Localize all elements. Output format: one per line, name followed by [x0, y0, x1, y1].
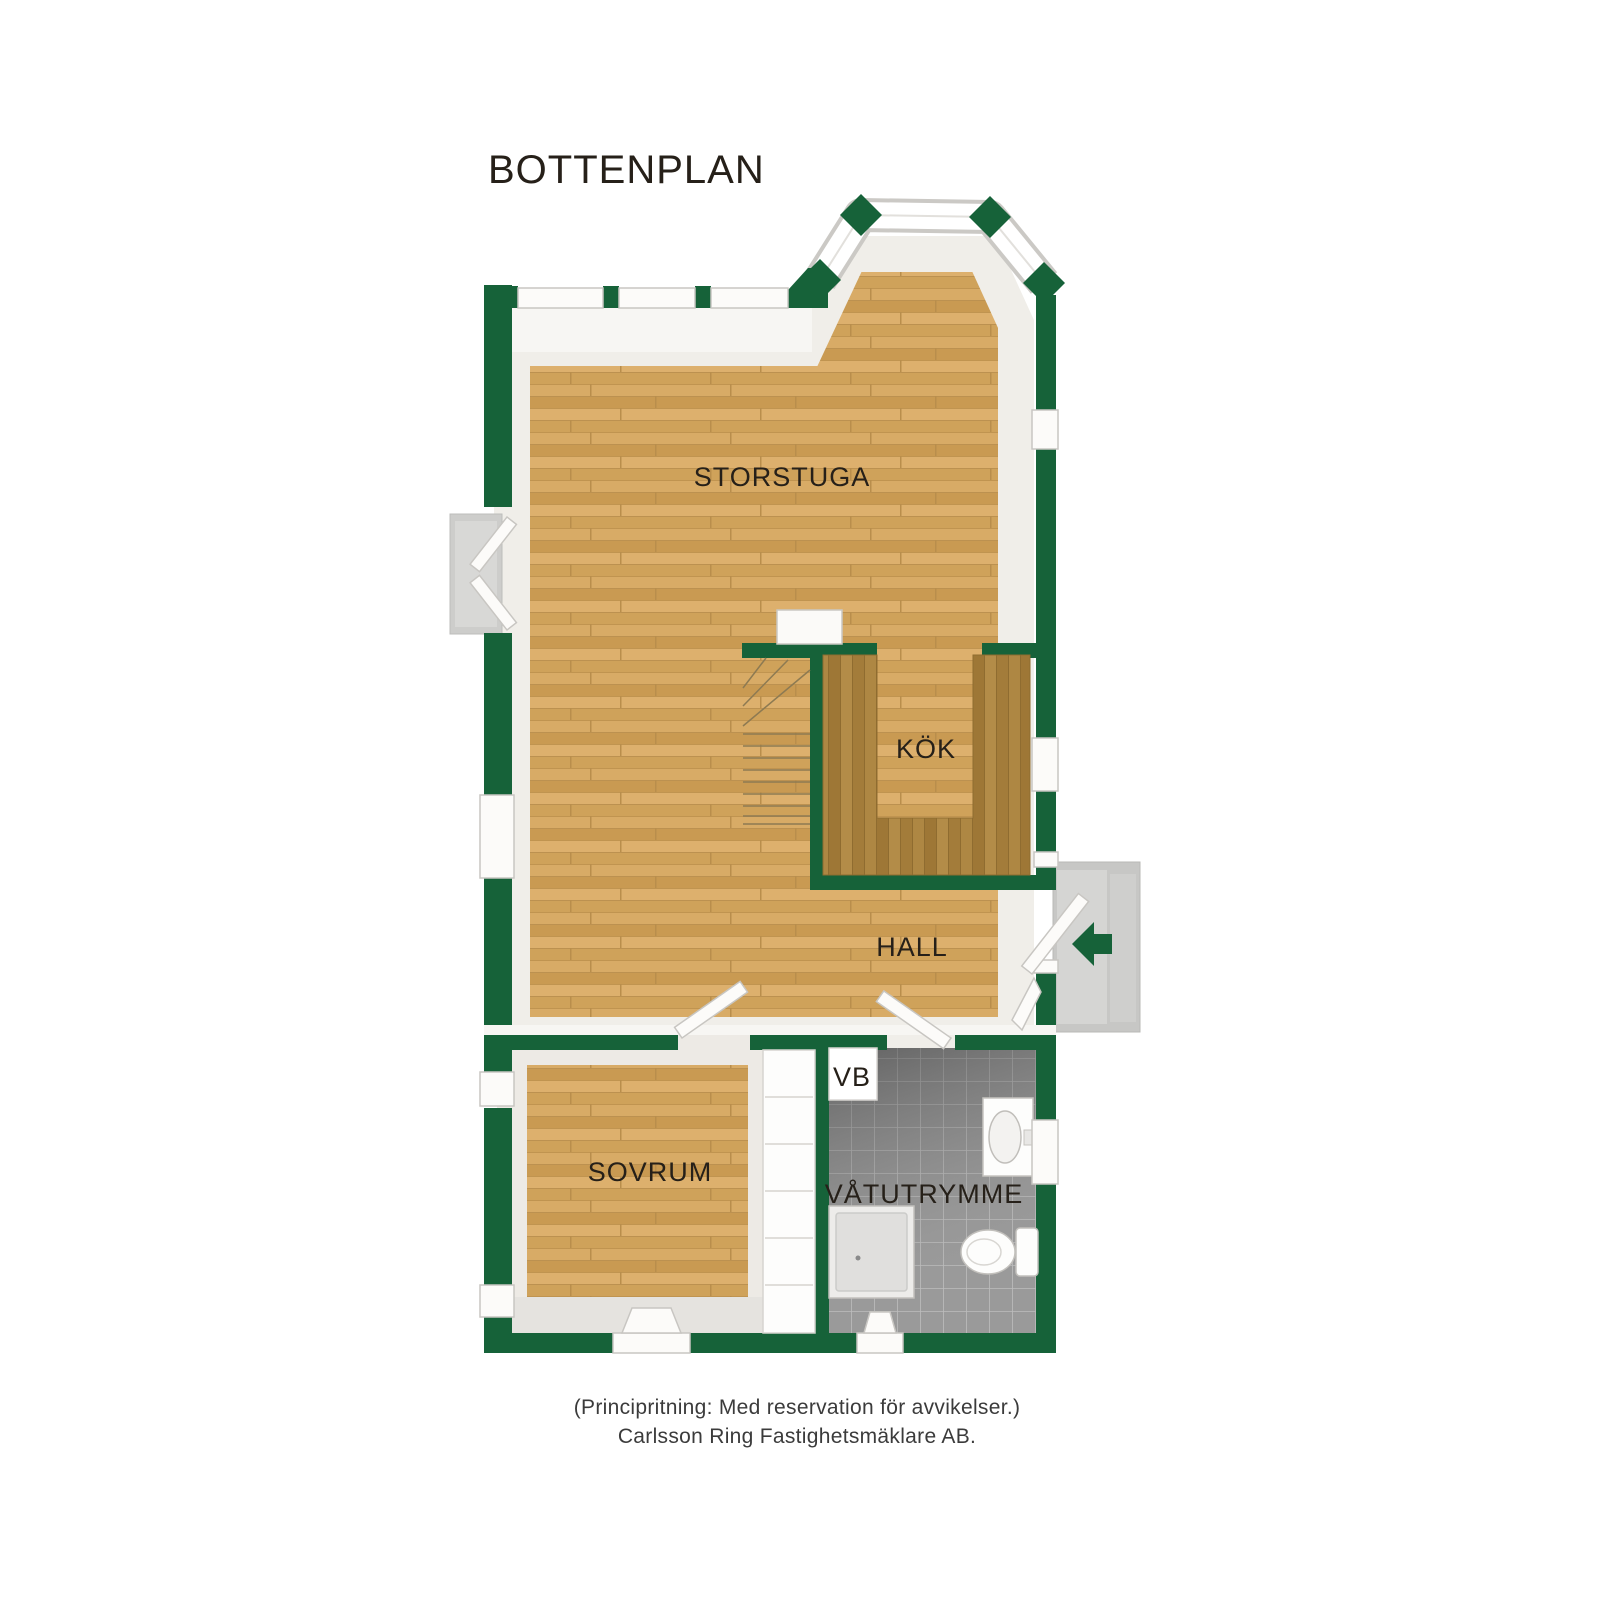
window-top-2	[619, 288, 695, 308]
room-label-storstuga: STORSTUGA	[694, 462, 871, 492]
footer-company: Carlsson Ring Fastighetsmäklare AB.	[618, 1425, 976, 1448]
sink	[983, 1098, 1033, 1176]
window-bottom-2	[857, 1333, 903, 1353]
entry-jamb-top	[1034, 852, 1058, 867]
floor-plan-page: BOTTENPLAN STORSTUGA KÖK HALL SOVRUM VB …	[0, 0, 1600, 1600]
room-label-sovrum: SOVRUM	[588, 1157, 713, 1187]
window-bottom-1	[613, 1333, 690, 1353]
room-label-vb: VB	[833, 1062, 871, 1092]
page-title: BOTTENPLAN	[488, 148, 765, 192]
window-top-1	[518, 288, 603, 308]
window-left-2	[480, 1072, 514, 1106]
window-left-1	[480, 795, 514, 878]
window-left-3	[480, 1285, 514, 1317]
sovrum-floor	[512, 1050, 763, 1333]
window-bottom-2-sill	[864, 1312, 896, 1333]
window-right-3	[1032, 1120, 1058, 1184]
room-label-kok: KÖK	[896, 734, 956, 764]
shower	[829, 1206, 914, 1298]
window-bottom-1-sill	[622, 1308, 681, 1333]
floor-plan: BOTTENPLAN STORSTUGA KÖK HALL SOVRUM VB …	[0, 0, 1600, 1600]
window-right-2	[1032, 738, 1058, 791]
room-label-vatutrymme: VÅTUTRYMME	[825, 1178, 1024, 1209]
window-right-1	[1032, 410, 1058, 449]
left-door-step	[450, 514, 502, 634]
room-label-hall: HALL	[876, 932, 948, 962]
footer-disclaimer: (Principritning: Med reservation för avv…	[574, 1396, 1021, 1419]
window-top-3	[711, 288, 788, 308]
toilet	[961, 1228, 1038, 1276]
wardrobe	[763, 1050, 815, 1333]
fireplace	[777, 610, 842, 644]
top-wall-inner-face	[512, 306, 812, 352]
